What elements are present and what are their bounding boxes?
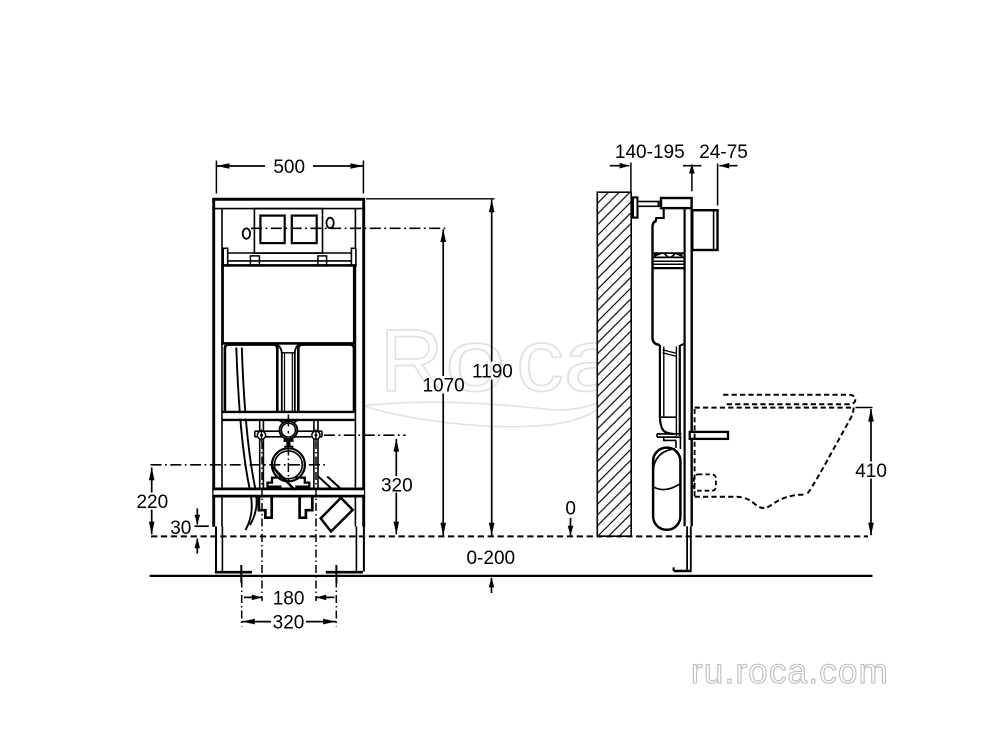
svg-text:140-195: 140-195 xyxy=(615,142,685,163)
svg-text:30: 30 xyxy=(170,518,191,539)
svg-text:ru.roca.com: ru.roca.com xyxy=(691,652,889,691)
svg-text:0: 0 xyxy=(565,498,576,519)
svg-text:c: c xyxy=(516,311,564,410)
svg-text:500: 500 xyxy=(273,157,305,178)
svg-text:220: 220 xyxy=(136,492,168,513)
svg-text:320: 320 xyxy=(273,612,305,633)
svg-text:24-75: 24-75 xyxy=(699,142,748,163)
svg-text:1070: 1070 xyxy=(422,376,464,397)
svg-text:180: 180 xyxy=(273,588,305,609)
svg-text:320: 320 xyxy=(381,475,413,496)
svg-text:0-200: 0-200 xyxy=(466,548,515,569)
svg-text:1190: 1190 xyxy=(472,361,513,382)
svg-text:410: 410 xyxy=(855,461,887,482)
